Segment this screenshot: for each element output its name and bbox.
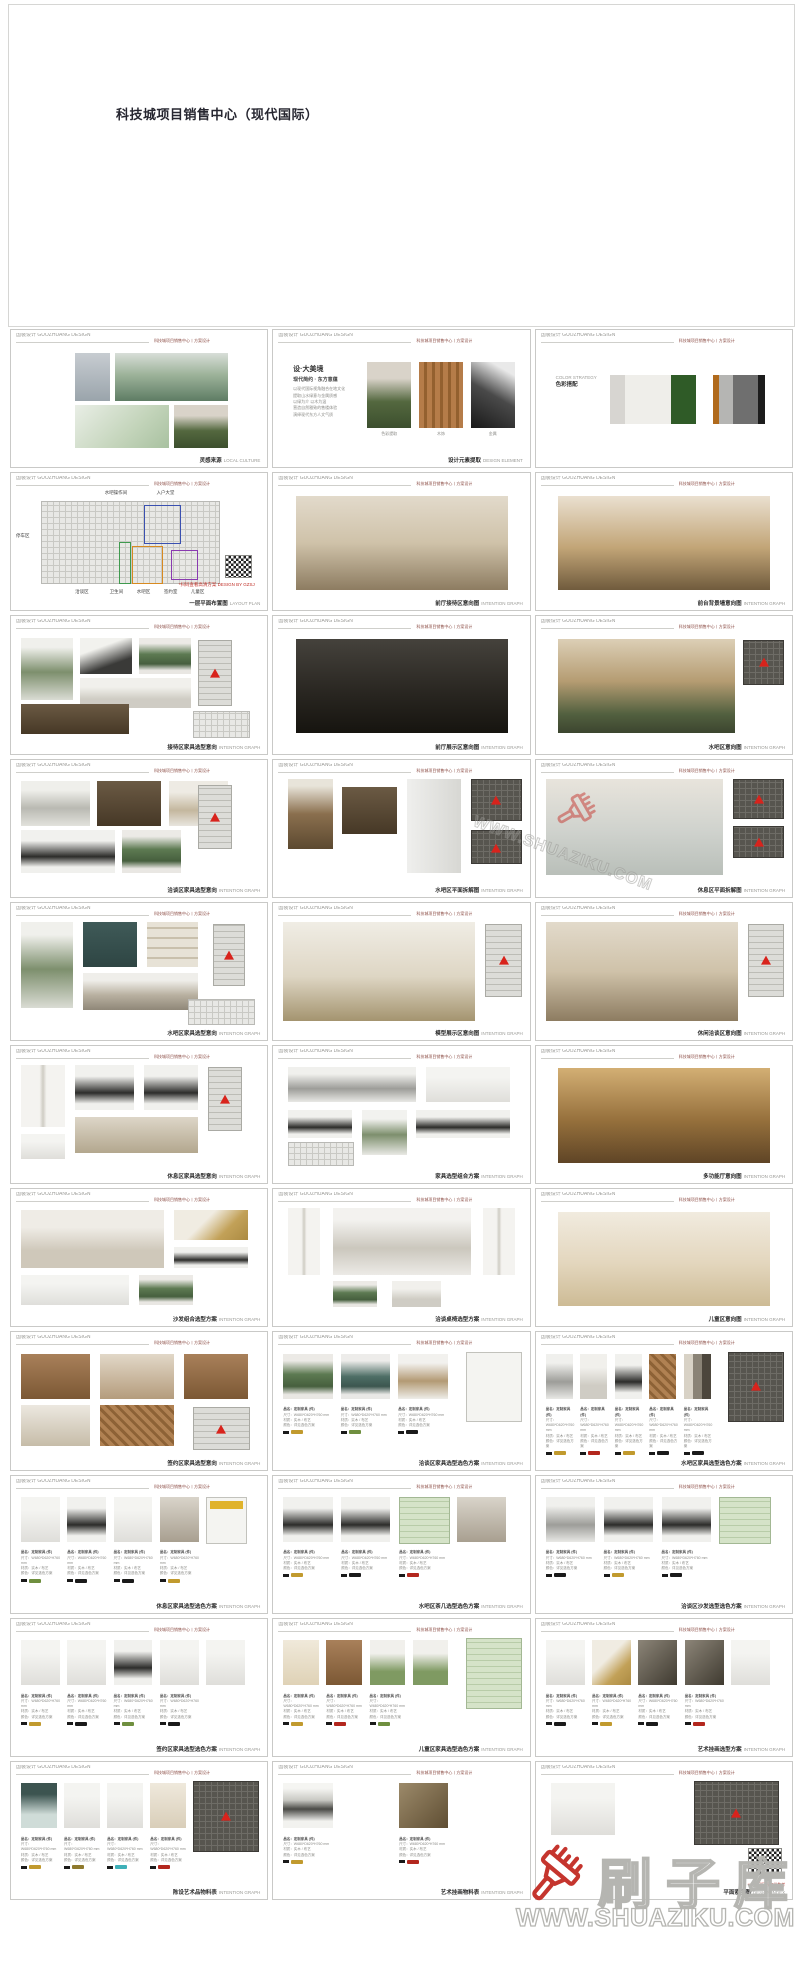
color-chip [580, 1452, 586, 1455]
whitechair-image [21, 1497, 60, 1542]
renderlight2-image [546, 779, 723, 875]
blacktable-image [21, 830, 115, 873]
plan-callout: 签约室 [164, 589, 178, 595]
slide-caption: 休息区家具选型意向INTENTION GRAPH [167, 1172, 260, 1180]
slide-header-rule [541, 1488, 674, 1489]
spec-line: 尺寸：W680*D620*H760 mm [283, 1699, 321, 1710]
spec-line: 品名：定制家具 (件) [615, 1407, 645, 1418]
slide-caption: 陈设艺术品物料表INTENTION GRAPH [173, 1888, 261, 1896]
slide-header-left: 国装设计 GUOZHUANG DESIGN [541, 1335, 787, 1341]
spec-chips [67, 1722, 108, 1726]
artdark-image [638, 1640, 677, 1685]
sidetable-image [114, 1497, 153, 1542]
slide-caption: 洽谈区沙发选型选色方案INTENTION GRAPH [681, 1602, 785, 1610]
slide-header-right: 科技城项目销售中心丨方案设计 [154, 768, 210, 774]
spec-line: 颜色：详见选色方案 [283, 1853, 337, 1858]
slide-cell: 国装设计 GUOZHUANG DESIGN科技城项目销售中心丨方案设计品名：定制… [10, 1761, 268, 1900]
spec-line: 尺寸：W680*D620*H760 mm [21, 1699, 62, 1710]
slide-cell: 国装设计 GUOZHUANG DESIGN科技城项目销售中心丨方案设计洽谈区家具… [10, 759, 268, 898]
caption-en: INTENTION GRAPH [744, 1604, 786, 1609]
floorlamp-image [21, 1065, 65, 1127]
slide-header-right: 科技城项目销售中心丨方案设计 [416, 624, 472, 630]
color-chip [649, 1452, 655, 1455]
slide-header: 国装设计 GUOZHUANG DESIGN科技城项目销售中心丨方案设计 [278, 1479, 524, 1492]
slide-body [16, 1063, 262, 1170]
spec-line: 品名：定制家具 (件) [580, 1407, 610, 1418]
slide-body: 设·大美境现代简约 · 东方意蕴以现代国际视角融合在地文化提取山水绿意与金属质感… [278, 347, 524, 454]
slide-header-right: 科技城项目销售中心丨方案设计 [679, 1340, 735, 1346]
material-tag [623, 1451, 635, 1455]
caption-cn: 沙发组合选型方案 [173, 1317, 217, 1323]
slide-header-right: 科技城项目销售中心丨方案设计 [154, 1627, 210, 1633]
material-tag [349, 1573, 361, 1577]
tealchair-image [341, 1354, 390, 1399]
slide-header-right: 科技城项目销售中心丨方案设计 [416, 338, 472, 344]
material-tag [378, 1722, 390, 1726]
caption-en: INTENTION GRAPH [481, 1604, 523, 1609]
slide-header-left: 国装设计 GUOZHUANG DESIGN [541, 619, 787, 625]
material-tag [291, 1430, 303, 1434]
caption-en: INTENTION GRAPH [219, 1747, 261, 1752]
material-tag [29, 1865, 41, 1869]
spec-chips [546, 1722, 587, 1726]
spec-line: 颜色：详见选色方案 [341, 1423, 394, 1428]
slide-cell: 国装设计 GUOZHUANG DESIGN科技城项目销售中心丨方案设计休息区平面… [535, 759, 793, 898]
caption-cn: 洽谈区家具选型意向 [167, 888, 217, 894]
product-spec: 品名：定制家具 (件)尺寸：W680*D620*H760 mm材质：实木 / 布… [64, 1837, 102, 1869]
caption-cn: 模型展示区意向图 [435, 1031, 479, 1037]
slide-body [16, 633, 262, 740]
slide-header-left: 国装设计 GUOZHUANG DESIGN [541, 763, 787, 769]
concept-line: 演绎现代东方人文气质 [293, 412, 357, 418]
slide-cell: 国装设计 GUOZHUANG DESIGN科技城项目销售中心丨方案设计品名：定制… [272, 1475, 530, 1614]
plan-zone-outline [119, 542, 131, 585]
teaset-image [100, 1354, 174, 1399]
color-chip [114, 1579, 120, 1582]
slide-header-rule [541, 1631, 674, 1632]
caption-cn: 平面索引图 [723, 1890, 751, 1896]
slide-header-rule [278, 915, 411, 916]
caption-en: INTENTION GRAPH [219, 1317, 261, 1322]
fridge-image [407, 779, 461, 873]
slide-header-left: 国装设计 GUOZHUANG DESIGN [278, 1622, 524, 1628]
caption-en: INTENTION GRAPH [744, 1031, 786, 1036]
plankey-image [198, 785, 232, 849]
slide-header-rule [278, 1058, 411, 1059]
caption-en: INTENTION GRAPH [744, 1461, 786, 1466]
color-chip [638, 1722, 644, 1725]
plan-zone-outline [132, 546, 164, 584]
color-chip [398, 1431, 404, 1434]
spec-line: 颜色：详见选色方案 [615, 1439, 645, 1450]
slide-cell: 国装设计 GUOZHUANG DESIGN科技城项目销售中心丨方案设计水吧区意向… [535, 615, 793, 754]
slide-cell: 国装设计 GUOZHUANG DESIGN科技城项目销售中心丨方案设计休闲洽谈区… [535, 902, 793, 1041]
slide-header-left: 国装设计 GUOZHUANG DESIGN [541, 1765, 787, 1771]
slide-cell: 国装设计 GUOZHUANG DESIGN科技城项目销售中心丨方案设计水吧区平面… [272, 759, 530, 898]
slide-header-left: 国装设计 GUOZHUANG DESIGN [278, 476, 524, 482]
slide-caption: 设计元素提取DESIGN ELEMENT [448, 456, 523, 464]
slide-header-right: 科技城项目销售中心丨方案设计 [416, 1484, 472, 1490]
slide-header-right: 科技城项目销售中心丨方案设计 [679, 1770, 735, 1776]
color-swatch [733, 375, 758, 424]
wooddetail-image [100, 1405, 174, 1446]
slide-header: 国装设计 GUOZHUANG DESIGN科技城项目销售中心丨方案设计 [278, 1192, 524, 1205]
plan-callout: 水吧区 [137, 589, 151, 595]
product-spec: 品名：定制家具 (件)尺寸：W680*D620*H760 mm材质：实木 / 布… [341, 1407, 394, 1434]
spec-line: 颜色：详见选色方案 [114, 1715, 155, 1720]
waterbar-image [558, 639, 735, 733]
portfolio-page: 科技城项目销售中心（现代国际） 国装设计 GUOZHUANG DESIGN科技城… [0, 0, 800, 1961]
color-chip [107, 1866, 113, 1869]
turtle-image [413, 1640, 449, 1685]
color-chip [662, 1574, 668, 1577]
slide-header: 国装设计 GUOZHUANG DESIGN科技城项目销售中心丨方案设计 [541, 1765, 787, 1778]
slide-body [541, 777, 787, 884]
spec-chips [592, 1722, 633, 1726]
slide-header: 国装设计 GUOZHUANG DESIGN科技城项目销售中心丨方案设计 [16, 1049, 262, 1062]
slide-header-right: 科技城项目销售中心丨方案设计 [416, 911, 472, 917]
slide-header-right: 科技城项目销售中心丨方案设计 [679, 1484, 735, 1490]
spec-line: 颜色：详见选色方案 [546, 1439, 576, 1450]
greenchair-image [139, 1275, 193, 1305]
yellowplan-image [206, 1497, 247, 1544]
spec-line: 颜色：详见选色方案 [638, 1715, 679, 1720]
product-spec: 品名：定制家具 (件)尺寸：W680*D620*H760 mm材质：实木 / 布… [283, 1694, 321, 1726]
plant-image [21, 638, 73, 700]
slide-header-rule [278, 342, 411, 343]
caption-cn: 水吧区家具选型意向 [167, 1031, 217, 1037]
cover-slide: 科技城项目销售中心（现代国际） [8, 4, 795, 327]
material-tag [670, 1573, 682, 1577]
material-tag [349, 1430, 361, 1434]
caption-cn: 水吧区家具选型选色方案 [681, 1461, 742, 1467]
color-chip [685, 1722, 691, 1725]
caption-cn: 接待区家具选型意向 [167, 745, 217, 751]
slide-header: 国装设计 GUOZHUANG DESIGN科技城项目销售中心丨方案设计 [16, 1192, 262, 1205]
plan-callout: 卫生间 [110, 589, 124, 595]
material-tag [554, 1722, 566, 1726]
slide-header: 国装设计 GUOZHUANG DESIGN科技城项目销售中心丨方案设计 [278, 619, 524, 632]
slide-caption: 水吧区意向图INTENTION GRAPH [709, 743, 786, 751]
slide-caption: 水吧区茶几选型选色方案INTENTION GRAPH [419, 1602, 523, 1610]
material-tag [554, 1451, 566, 1455]
slide-body: 品名：定制家具 (件)尺寸：W680*D620*H760 mm材质：实木 / 布… [541, 1349, 787, 1456]
material-tag [657, 1451, 669, 1455]
slide-cell: 国装设计 GUOZHUANG DESIGN科技城项目销售中心丨方案设计多功能厅意… [535, 1045, 793, 1184]
slide-body [541, 633, 787, 740]
spec-line: 尺寸：W680*D620*H760 mm [283, 1413, 336, 1418]
spec-line: 颜色：详见选色方案 [21, 1571, 62, 1576]
caption-cn: 洽谈区家具选型选色方案 [419, 1461, 480, 1467]
slide-body: 品名：定制家具 (件)尺寸：W680*D620*H760 mm材质：实木 / 布… [541, 1493, 787, 1600]
slide-body [16, 1206, 262, 1313]
slide-body [278, 633, 524, 740]
caption-en: INTENTION GRAPH [481, 1747, 523, 1752]
spec-line: 品名：定制家具 (件) [684, 1407, 714, 1418]
slide-header-right: 科技城项目销售中心丨方案设计 [679, 481, 735, 487]
spec-chips [21, 1865, 59, 1869]
material-tag [168, 1579, 180, 1583]
caption-en: INTENTION GRAPH [481, 888, 523, 893]
portrait-image [367, 362, 411, 428]
slide-cell: 国装设计 GUOZHUANG DESIGN科技城项目销售中心丨方案设计前台背景墙… [535, 472, 793, 611]
plan-callout: 水吧操作间 [105, 490, 128, 496]
product-spec: 品名：定制家具 (件)尺寸：W680*D620*H760 mm材质：实木 / 布… [370, 1694, 408, 1726]
product-spec: 品名：定制家具 (件)尺寸：W680*D620*H760 mm材质：实木 / 布… [546, 1407, 576, 1455]
plankey-image [198, 640, 232, 706]
plan-zone-outline [144, 505, 180, 543]
slide-header-left: 国装设计 GUOZHUANG DESIGN [541, 906, 787, 912]
slide-header-right: 科技城项目销售中心丨方案设计 [679, 1197, 735, 1203]
spec-line: 颜色：详见选色方案 [21, 1858, 59, 1863]
turtle-image [370, 1640, 406, 1685]
plan-callout: 入户大堂 [156, 490, 174, 496]
slide-header-left: 国装设计 GUOZHUANG DESIGN [16, 1622, 262, 1628]
bronze-image [288, 779, 332, 850]
spec-chips [283, 1860, 337, 1864]
plan-callout: 儿童区 [191, 589, 205, 595]
slide-cell: 国装设计 GUOZHUANG DESIGN科技城项目销售中心丨方案设计灵感来源L… [10, 329, 268, 468]
caption-en: INTENTION GRAPH [219, 1890, 261, 1895]
greenchair-image [333, 1281, 377, 1307]
slide-header: 国装设计 GUOZHUANG DESIGN科技城项目销售中心丨方案设计 [16, 1765, 262, 1778]
slide-cell: 国装设计 GUOZHUANG DESIGN科技城项目销售中心丨方案设计前厅展示区… [272, 615, 530, 754]
material-tag [75, 1722, 87, 1726]
spec-chips [580, 1451, 610, 1455]
qr-code [225, 555, 252, 578]
slide-body: 品名：定制家具 (件)尺寸：W680*D620*H760 mm材质：实木 / 布… [278, 1779, 524, 1886]
goldart-image [592, 1640, 631, 1685]
spec-line: 品名：定制家具 (件) [546, 1407, 576, 1418]
slide-header-rule [16, 628, 149, 629]
caption-en: INTENTION GRAPH [744, 888, 786, 893]
portrait-image [174, 405, 228, 448]
slide-header-right: 科技城项目销售中心丨方案设计 [154, 1054, 210, 1060]
spec-line: 尺寸：W680*D620*H760 mm [370, 1699, 408, 1710]
caption-cn: 水吧区平面拆解图 [435, 888, 479, 894]
caption-cn: 前厅接待区意向图 [435, 601, 479, 607]
product-spec: 品名：定制家具 (件)尺寸：W680*D620*H760 mm材质：实木 / 布… [580, 1407, 610, 1455]
blacktable-image [174, 1247, 248, 1268]
product-spec: 品名：定制家具 (件)尺寸：W680*D620*H760 mm材质：实木 / 布… [592, 1694, 633, 1726]
sculpt-image [21, 781, 90, 826]
spec-line: 尺寸：W680*D620*H760 mm [638, 1699, 679, 1710]
kidsrender-image [558, 1212, 770, 1306]
slide-body [278, 490, 524, 597]
spec-line: 颜色：详见选色方案 [685, 1715, 726, 1720]
slide-header-rule [541, 772, 674, 773]
stool-image [206, 1640, 245, 1685]
slide-caption: 休息区平面拆解图INTENTION GRAPH [698, 886, 786, 894]
slide-header-left: 国装设计 GUOZHUANG DESIGN [541, 333, 787, 339]
slide-caption: 平面索引图DESIGN INDEX [723, 1888, 785, 1896]
spec-line: 尺寸：W680*D620*H760 mm [64, 1842, 102, 1853]
slide-cell: 国装设计 GUOZHUANG DESIGN科技城项目销售中心丨方案设计前厅接待区… [272, 472, 530, 611]
spec-chips [638, 1722, 679, 1726]
slide-header-left: 国装设计 GUOZHUANG DESIGN [541, 1479, 787, 1485]
stool-image [21, 1134, 65, 1160]
slide-header-rule [16, 1774, 149, 1775]
color-swatch [610, 375, 625, 424]
whiteplan-image [466, 1352, 522, 1423]
spec-chips [326, 1722, 364, 1726]
material-tag [693, 1722, 705, 1726]
daybed-image [67, 1640, 106, 1685]
material-tag [29, 1579, 41, 1583]
slide-header-left: 国装设计 GUOZHUANG DESIGN [541, 1622, 787, 1628]
slide-header-left: 国装设计 GUOZHUANG DESIGN [16, 1049, 262, 1055]
kettle-image [21, 1405, 90, 1446]
color-chip [67, 1722, 73, 1725]
slide-header: 国装设计 GUOZHUANG DESIGN科技城项目销售中心丨方案设计 [278, 476, 524, 489]
caption-cn: 洽谈桌椅选型方案 [435, 1317, 479, 1323]
color-chip [399, 1860, 405, 1863]
spec-line: 尺寸：W680*D620*H760 mm [160, 1556, 201, 1567]
color-chip [283, 1574, 289, 1577]
spec-line: 尺寸：W680*D620*H760 mm [615, 1418, 645, 1434]
loungegrey-image [546, 1354, 573, 1399]
slide-header-rule [278, 628, 411, 629]
spec-line: 颜色：详见选色方案 [604, 1566, 657, 1571]
material-tag [588, 1451, 600, 1455]
slide-header-rule [278, 485, 411, 486]
slide-header-left: 国装设计 GUOZHUANG DESIGN [16, 333, 262, 339]
slide-caption: 洽谈区家具选型选色方案INTENTION GRAPH [419, 1459, 523, 1467]
color-chip [150, 1866, 156, 1869]
bigplan-image [193, 1781, 259, 1852]
page-title: 科技城项目销售中心（现代国际） [116, 104, 319, 123]
caption-en: INTENTION GRAPH [219, 888, 261, 893]
slide-body: 品名：定制家具 (件)尺寸：W680*D620*H760 mm材质：实木 / 布… [541, 1636, 787, 1743]
slide-cell: 国装设计 GUOZHUANG DESIGN科技城项目销售中心丨方案设计品名：定制… [272, 1618, 530, 1757]
spec-line: 颜色：详见选色方案 [662, 1566, 715, 1571]
slide-header-rule [16, 1631, 149, 1632]
color-chip [546, 1722, 552, 1725]
slide-body: 水吧操作间入户大堂停车区洽谈区卫生间水吧区签约室儿童区*扫码查看高清方案 DES… [16, 490, 262, 597]
blackround-image [144, 1065, 198, 1110]
slide-body: 品名：定制家具 (件)尺寸：W680*D620*H760 mm材质：实木 / 布… [16, 1493, 262, 1600]
slide-header-rule [541, 342, 674, 343]
palette-labels: COLOR STRATEGY色彩搭配 [556, 375, 597, 388]
product-spec: 品名：定制家具 (件)尺寸：W680*D620*H760 mm材质：实木 / 布… [283, 1837, 337, 1864]
slide-cell: 国装设计 GUOZHUANG DESIGN科技城项目销售中心丨方案设计签约区家具… [10, 1331, 268, 1470]
product-spec: 品名：定制家具 (件)尺寸：W680*D620*H760 mm材质：实木 / 布… [114, 1550, 155, 1582]
product-spec: 品名：定制家具 (件)尺寸：W680*D620*H760 mm材质：实木 / 布… [283, 1407, 336, 1434]
slide-header-left: 国装设计 GUOZHUANG DESIGN [16, 1335, 262, 1341]
slide-header: 国装设计 GUOZHUANG DESIGN科技城项目销售中心丨方案设计 [278, 1765, 524, 1778]
slide-header: 国装设计 GUOZHUANG DESIGN科技城项目销售中心丨方案设计 [541, 333, 787, 346]
slide-header-rule [278, 1488, 411, 1489]
slide-header-left: 国装设计 GUOZHUANG DESIGN [278, 1479, 524, 1485]
slide-header-left: 国装设计 GUOZHUANG DESIGN [16, 619, 262, 625]
caption-en: DESIGN ELEMENT [483, 458, 523, 463]
product-spec: 品名：定制家具 (件)尺寸：W680*D620*H760 mm材质：实木 / 布… [160, 1694, 201, 1726]
caption-cn: 休息区家具选型选色方案 [156, 1604, 217, 1610]
slide-caption: 水吧区平面拆解图INTENTION GRAPH [435, 886, 523, 894]
color-chip [21, 1722, 27, 1725]
spec-line: 尺寸：W680*D620*H760 mm [326, 1699, 364, 1710]
spec-line: 颜色：详见选色方案 [399, 1853, 453, 1858]
caption-cn: 设计元素提取 [448, 458, 481, 464]
spec-line: 尺寸：W680*D620*H760 mm [114, 1556, 155, 1567]
material-tag [692, 1451, 704, 1455]
caption-en: LAYOUT PLAN [230, 601, 261, 606]
spec-line: 颜色：详见选色方案 [341, 1566, 394, 1571]
caption-en: INTENTION GRAPH [744, 1174, 786, 1179]
slide-header: 国装设计 GUOZHUANG DESIGN科技城项目销售中心丨方案设计 [541, 1049, 787, 1062]
plan-zone-outline [171, 550, 198, 580]
slide-caption: 艺术挂画物料表INTENTION GRAPH [441, 1888, 523, 1896]
sofagrey-image [288, 1067, 416, 1101]
slide-header: 国装设计 GUOZHUANG DESIGN科技城项目销售中心丨方案设计 [278, 1335, 524, 1348]
slide-header-rule [541, 485, 674, 486]
slide-header-left: 国装设计 GUOZHUANG DESIGN [278, 1765, 524, 1771]
slide-body [278, 1063, 524, 1170]
spec-chips [685, 1722, 726, 1726]
material-tag [291, 1573, 303, 1577]
tower-image [75, 353, 109, 400]
slide-header-right: 科技城项目销售中心丨方案设计 [416, 1770, 472, 1776]
blackround-image [615, 1354, 642, 1399]
ringtable-image [341, 1497, 390, 1542]
spec-chips [67, 1579, 108, 1583]
color-chip [341, 1431, 347, 1434]
slide-caption: 前厅展示区意向图INTENTION GRAPH [435, 743, 523, 751]
qr-image [748, 1848, 782, 1876]
slide-body [541, 920, 787, 1027]
slide-header: 国装设计 GUOZHUANG DESIGN科技城项目销售中心丨方案设计 [278, 1622, 524, 1635]
product-spec: 品名：定制家具 (件)尺寸：W680*D620*H760 mm材质：实木 / 布… [67, 1550, 108, 1582]
inkart-image [80, 638, 132, 674]
slide-header-left: 国装设计 GUOZHUANG DESIGN [278, 333, 524, 339]
caption-cn: 艺术挂画选型方案 [698, 1747, 742, 1753]
slide-header-rule [278, 1344, 411, 1345]
floorlamp-image [288, 1208, 320, 1274]
product-spec: 品名：定制家具 (件)尺寸：W680*D620*H760 mm材质：实木 / 布… [21, 1837, 59, 1869]
darkplan-image [694, 1781, 780, 1845]
slide-body [541, 1779, 787, 1886]
slide-body [16, 920, 262, 1027]
image-label: 色彩提取 [367, 431, 411, 437]
concept-text: 设·大美境现代简约 · 东方意蕴以现代国际视角融合在地文化提取山水绿意与金属质感… [293, 364, 357, 418]
sofaset-image [21, 1210, 164, 1268]
slide-header-left: 国装设计 GUOZHUANG DESIGN [16, 1192, 262, 1198]
slide-header-right: 科技城项目销售中心丨方案设计 [679, 911, 735, 917]
plan-image [288, 1142, 354, 1165]
slide-header: 国装设计 GUOZHUANG DESIGN科技城项目销售中心丨方案设计 [16, 1335, 262, 1348]
slide-caption: 模型展示区意向图INTENTION GRAPH [435, 1029, 523, 1037]
spec-line: 尺寸：W680*D620*H760 mm [546, 1418, 576, 1434]
product-spec: 品名：定制家具 (件)尺寸：W680*D620*H760 mm材质：实木 / 布… [546, 1550, 599, 1577]
slide-header-rule [16, 1488, 149, 1489]
product-spec: 品名：定制家具 (件)尺寸：W680*D620*H760 mm材质：实木 / 布… [638, 1694, 679, 1726]
spec-chips [150, 1865, 188, 1869]
caption-en: INTENTION GRAPH [219, 1604, 261, 1609]
displaycab-image [75, 1117, 198, 1153]
slide-header: 国装设计 GUOZHUANG DESIGN科技城项目销售中心丨方案设计 [16, 619, 262, 632]
spec-line: 颜色：详见选色方案 [21, 1715, 62, 1720]
product-spec: 品名：定制家具 (件)尺寸：W680*D620*H760 mm材质：实木 / 布… [326, 1694, 364, 1726]
slide-caption: 洽谈桌椅选型方案INTENTION GRAPH [435, 1315, 523, 1323]
slide-caption: 接待区家具选型意向INTENTION GRAPH [167, 743, 260, 751]
slide-header-rule [16, 485, 149, 486]
slide-header-left: 国装设计 GUOZHUANG DESIGN [16, 763, 262, 769]
renderlight-image [296, 496, 508, 590]
material-tag [29, 1722, 41, 1726]
slide-body [16, 1349, 262, 1456]
spec-line: 颜色：详见选色方案 [160, 1571, 201, 1576]
daybed-image [21, 1640, 60, 1685]
